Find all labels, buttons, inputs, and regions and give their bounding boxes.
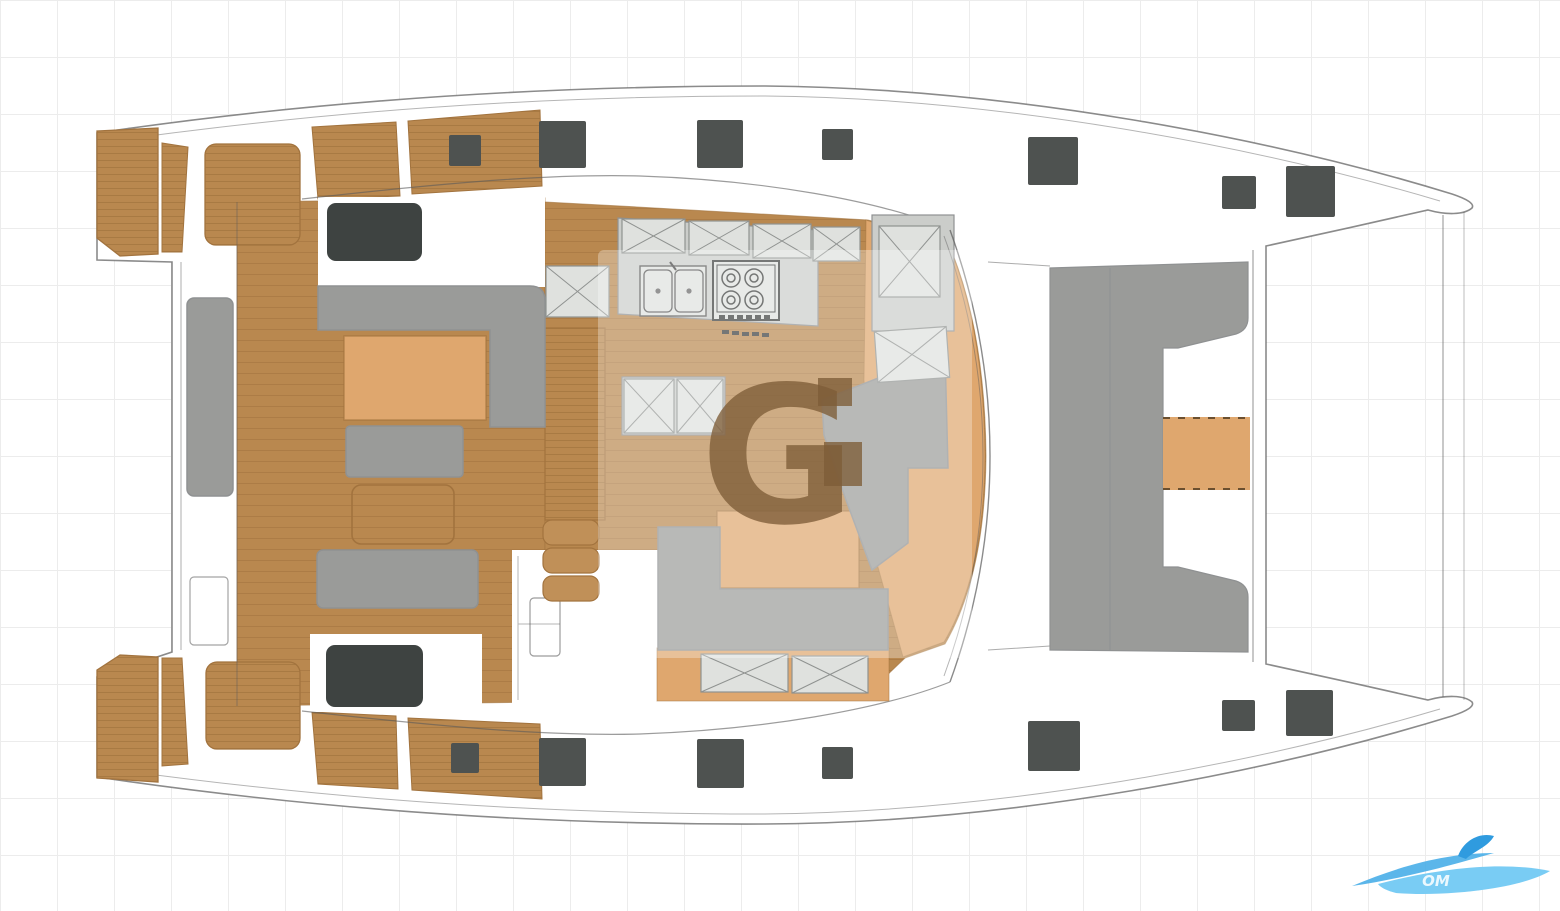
- deck-hatch: [539, 121, 586, 168]
- x-locker: [689, 221, 749, 255]
- deck-hatch: [822, 747, 853, 779]
- floor-plan-canvas: G OM: [0, 0, 1560, 911]
- cockpit-table: [344, 336, 486, 420]
- deck-hatch: [1286, 166, 1335, 217]
- cockpit-wood-bench: [352, 485, 454, 544]
- deck-hatch: [1286, 690, 1333, 736]
- transom-bench: [187, 298, 233, 496]
- roof-hatch: [326, 645, 423, 707]
- walkway-planked: [545, 328, 605, 520]
- deck-hatch: [1222, 700, 1255, 731]
- side-bench-top-1: [312, 122, 400, 199]
- floor-plan-drawing: G OM: [0, 0, 1560, 911]
- watermark-bar: [824, 442, 862, 486]
- deck-hatch: [1028, 721, 1080, 771]
- deck-hatch: [451, 743, 479, 773]
- x-locker: [701, 654, 788, 692]
- watermark-square: [818, 378, 852, 406]
- deck-hatch: [697, 120, 743, 168]
- wave-logo: OM: [1352, 835, 1550, 894]
- cockpit-wide-seat: [317, 550, 478, 608]
- transom-panel-bottom: [206, 662, 300, 749]
- x-locker: [792, 656, 868, 693]
- transom-steps-bottom: [97, 655, 188, 782]
- deck-hatch: [1222, 176, 1256, 209]
- bow-seat-cushion: [1163, 417, 1250, 490]
- wave-logo-text: OM: [1422, 872, 1450, 890]
- watermark: G: [598, 250, 972, 658]
- transom-panel-top: [205, 144, 300, 245]
- deck-hatch: [539, 738, 586, 786]
- deck-hatch: [449, 135, 481, 166]
- side-bench-bottom-1: [312, 712, 398, 789]
- cockpit-bench: [346, 426, 463, 477]
- companionway-steps: [543, 520, 599, 601]
- deck-hatch: [822, 129, 853, 160]
- transom-step-box: [190, 577, 228, 645]
- deck-hatch: [697, 739, 744, 788]
- roof-hatch: [327, 203, 422, 261]
- transom-steps-top: [97, 128, 188, 256]
- deck-hatch: [1028, 137, 1078, 185]
- x-locker: [622, 219, 685, 253]
- entry-door: [530, 598, 560, 656]
